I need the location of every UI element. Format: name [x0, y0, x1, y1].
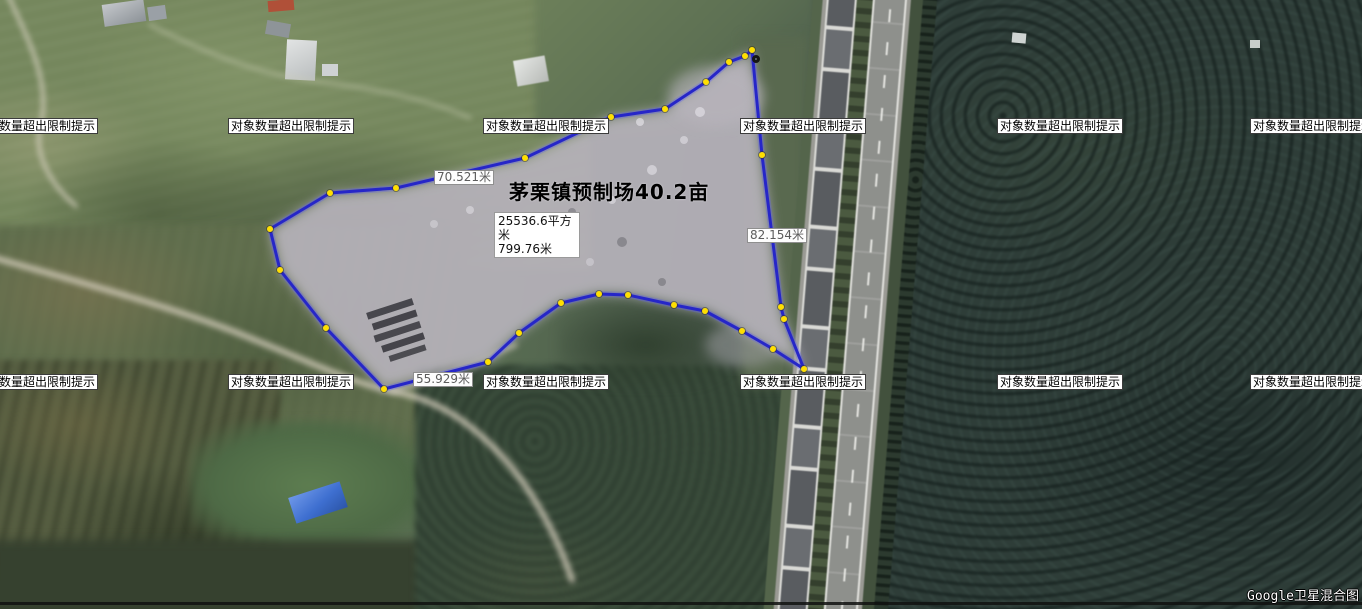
polygon-vertex[interactable]: [742, 53, 748, 59]
polygon-vertex[interactable]: [393, 185, 399, 191]
polygon-vertex-active[interactable]: [752, 55, 760, 63]
polygon-vertex[interactable]: [739, 328, 745, 334]
polygon-vertex[interactable]: [277, 267, 283, 273]
path-village: [150, 25, 470, 118]
polygon-vertex[interactable]: [558, 300, 564, 306]
polygon-vertex[interactable]: [702, 308, 708, 314]
map-canvas[interactable]: 70.521米82.154米55.929米对象数量超出限制提示对象数量超出限制提…: [0, 0, 1362, 609]
parcel-title-label[interactable]: 茅栗镇预制场40.2亩: [509, 176, 709, 205]
polygon-vertex[interactable]: [485, 359, 491, 365]
annotation-overlay: [0, 0, 1362, 609]
polygon-vertex[interactable]: [522, 155, 528, 161]
polygon-vertex[interactable]: [703, 79, 709, 85]
parcel-area-value: 25536.6平方米: [498, 214, 576, 242]
polygon-vertex[interactable]: [516, 330, 522, 336]
polygon-vertex[interactable]: [671, 302, 677, 308]
polygon-vertex[interactable]: [608, 114, 614, 120]
polygon-vertex[interactable]: [323, 325, 329, 331]
path-topleft: [8, 0, 76, 206]
map-attribution: Google卫星混合图: [1247, 585, 1359, 604]
polygon-vertex[interactable]: [778, 304, 784, 310]
polygon-vertex[interactable]: [749, 47, 755, 53]
polygon-vertex[interactable]: [267, 226, 273, 232]
parcel-perimeter-value: 799.76米: [498, 242, 576, 256]
polygon-vertex[interactable]: [596, 291, 602, 297]
polygon-vertex[interactable]: [759, 152, 765, 158]
polygon-vertex[interactable]: [381, 386, 387, 392]
polygon-vertex[interactable]: [770, 346, 776, 352]
polygon-vertex[interactable]: [726, 59, 732, 65]
polygon-vertex[interactable]: [781, 316, 787, 322]
polygon-vertex[interactable]: [662, 106, 668, 112]
polygon-vertex[interactable]: [801, 366, 807, 372]
polygon-vertex[interactable]: [327, 190, 333, 196]
parcel-area-box: 25536.6平方米 799.76米: [494, 212, 580, 258]
polygon-vertex[interactable]: [625, 292, 631, 298]
